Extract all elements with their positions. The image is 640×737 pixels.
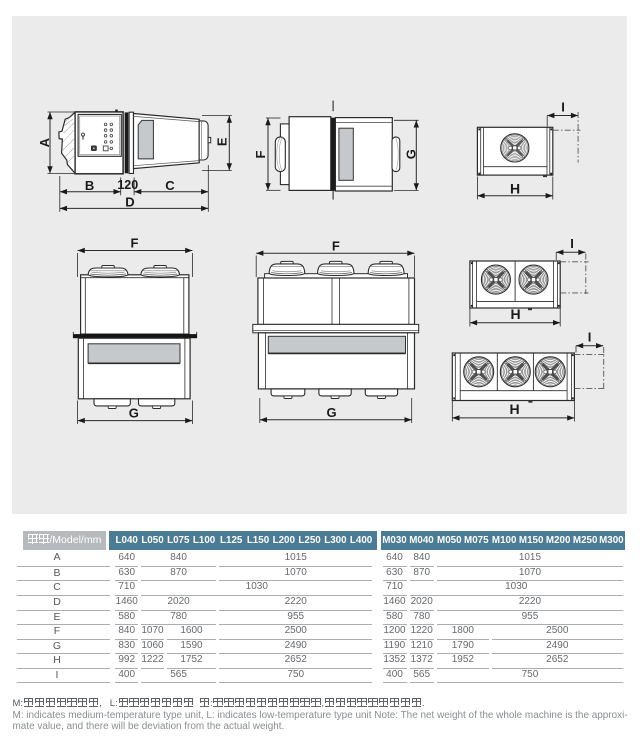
svg-text:F: F xyxy=(131,236,139,251)
svg-text:E: E xyxy=(214,137,229,146)
svg-text:A: A xyxy=(37,137,52,147)
svg-text:F: F xyxy=(332,238,340,253)
svg-text:H: H xyxy=(510,306,520,322)
svg-text:H: H xyxy=(509,401,519,417)
svg-text:F: F xyxy=(253,150,268,158)
svg-text:D: D xyxy=(125,195,134,210)
svg-text:I: I xyxy=(561,99,565,114)
svg-text:G: G xyxy=(403,149,418,159)
svg-text:H: H xyxy=(510,180,520,196)
svg-text:C: C xyxy=(165,178,175,193)
svg-text:B: B xyxy=(85,178,94,193)
svg-text:I: I xyxy=(588,330,592,345)
svg-text:I: I xyxy=(570,236,574,251)
svg-text:120: 120 xyxy=(117,178,138,192)
svg-text:G: G xyxy=(327,405,337,420)
svg-text:G: G xyxy=(129,406,139,421)
